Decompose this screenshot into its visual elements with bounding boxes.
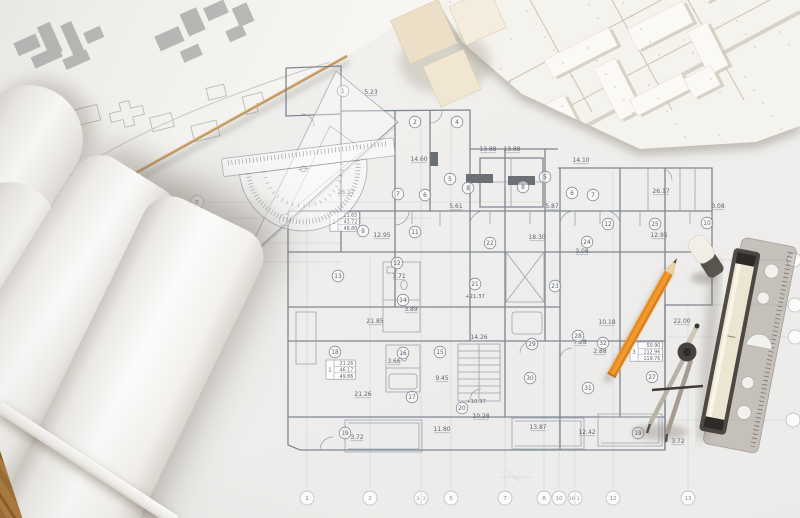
stipple-dot [474,126,476,128]
svg-text:3.08: 3.08 [575,248,589,255]
stipple-dot [779,31,781,33]
dimension-label: 21.26 [354,391,371,398]
compass-foot-right [666,434,667,442]
stipple-dot [500,68,502,70]
stipple-dot [614,86,616,88]
dimension-label: 2.88 [593,348,607,355]
room-number: 25 [649,218,661,230]
stipple-dot [571,75,573,77]
svg-text:14: 14 [399,298,407,304]
svg-text:22: 22 [486,241,494,247]
stipple-dot [745,33,747,35]
dimension-label: 13.88 [503,146,520,153]
svg-text:17: 17 [408,395,416,401]
stipple-dot [465,113,467,115]
svg-text:18: 18 [331,350,339,356]
svg-text:8: 8 [542,496,546,502]
svg-text:10: 10 [569,496,575,502]
compass-stem-tip [695,324,700,329]
svg-text:2.88: 2.88 [593,348,607,355]
stipple-dot [753,89,755,91]
axis-bubble: 101 [568,491,582,505]
stipple-dot [771,115,773,117]
stipple-dot [649,41,651,43]
dimension-label: 10.28 [472,413,489,420]
svg-text:10: 10 [703,221,711,227]
svg-text:3.89: 3.89 [404,306,418,313]
compass-crossbar [652,386,703,390]
compass-shadow [632,424,688,440]
room-number: 13 [332,270,344,282]
stipple-dot [623,99,625,101]
dimension-label: 9.45 [435,375,449,382]
area-table: 21.2646.1749.861 [326,360,355,380]
axis-bubble: 2 [363,491,377,505]
room-number: 10 [701,217,713,229]
svg-text:8: 8 [466,186,470,192]
svg-text:10.28: 10.28 [472,413,489,420]
axis-bubble: 13 [681,491,695,505]
stipple-dot [710,78,712,80]
svg-text:43.72: 43.72 [344,219,358,225]
svg-text:7: 7 [503,496,507,502]
stipple-dot [736,20,738,22]
svg-text:49.86: 49.86 [340,374,354,380]
room-number: 7 [587,189,599,201]
stipple-dot [684,136,686,138]
room-number: 8 [462,182,474,194]
svg-text:5.87: 5.87 [545,203,559,210]
stipple-dot [657,97,659,99]
axis-bubbles-bottom: 1232578101011213 [300,491,695,505]
stipple-dot [544,36,546,38]
dimension-label: 22.00 [673,318,690,325]
svg-text:3: 3 [416,496,419,502]
compass-leg-left [650,360,683,424]
stipple-dot [632,112,634,114]
level-mark: +10.37 [466,399,486,405]
stipple-dot [536,120,538,122]
stipple-dot [640,28,642,30]
axis-bubble: 5 [444,491,458,505]
svg-text:22.00: 22.00 [673,318,690,325]
axis-bubble: 32 [414,491,428,505]
dimension-label: 12.42 [578,429,595,436]
dimension-label: 21.85 [366,318,383,325]
room-number: 12 [391,257,403,269]
dimension-label: 10.18 [598,319,615,326]
svg-text:46.17: 46.17 [340,367,354,373]
stipple-dot [605,73,607,75]
stipple-dot [483,139,485,141]
axis-bubble: 7 [498,491,512,505]
svg-text:10.18: 10.18 [598,319,615,326]
svg-text:3: 3 [632,350,635,356]
axis-bubble: 1 [300,491,314,505]
room-number: 2 [409,116,421,128]
stipple-dot [718,134,720,136]
room-number: 22 [484,237,496,249]
stipple-dot [788,44,790,46]
svg-text:48.80: 48.80 [344,226,358,232]
svg-text:25: 25 [651,222,659,228]
stipple-dot [719,91,721,93]
svg-text:9.45: 9.45 [435,375,449,382]
dimension-label: 12.95 [373,232,390,239]
dimension-label: 3.72 [671,438,685,445]
svg-text:29: 29 [528,342,536,348]
room-number: 29 [526,338,538,350]
stipple-dot [744,76,746,78]
dimension-label: 5.61 [449,203,463,210]
room-number: 20 [456,402,468,414]
svg-text:31: 31 [584,386,592,392]
stipple-dot [693,9,695,11]
svg-text:5: 5 [543,175,547,181]
room-number: 6 [419,189,431,201]
room-number: 4 [451,116,463,128]
svg-text:6: 6 [423,193,427,199]
svg-text:13.87: 13.87 [529,424,546,431]
rolling-ruler [697,236,798,454]
dimension-label: 14.10 [572,157,589,164]
room-number: 9 [357,225,369,237]
stipple-dot [509,81,511,83]
dimension-label: 5.87 [545,203,559,210]
svg-text:1: 1 [577,496,580,502]
svg-text:14.26: 14.26 [470,334,487,341]
svg-text:5: 5 [448,177,452,183]
axis-bubble: 12 [606,491,620,505]
svg-text:11: 11 [411,230,419,236]
svg-text:12: 12 [609,496,616,502]
svg-text:7: 7 [396,192,400,198]
dimension-label: 11.80 [433,426,450,433]
svg-text:21.85: 21.85 [366,318,383,325]
svg-text:12: 12 [604,222,612,228]
stipple-dot [631,15,633,17]
stipple-dot [562,62,564,64]
level-mark: +21.37 [465,294,485,300]
room-number: 19 [339,427,351,439]
svg-text:3.72: 3.72 [671,438,685,445]
eraser [686,232,727,284]
dimension-label: 13.87 [529,424,546,431]
svg-text:2: 2 [368,496,372,502]
svg-text:30: 30 [526,376,534,382]
svg-text:13.88: 13.88 [503,146,520,153]
compass-stem [688,328,696,344]
stipple-dot [780,128,782,130]
svg-text:27: 27 [648,375,656,381]
svg-text:3.71: 3.71 [392,273,406,280]
stipple-dot [622,2,624,4]
svg-text:12.95: 12.95 [650,232,667,239]
stipple-dot [597,17,599,19]
protractor [221,138,403,240]
stipple-dot [762,102,764,104]
svg-text:3.08: 3.08 [711,203,725,210]
stipple-dot [754,46,756,48]
stipple-dot [701,65,703,67]
room-number: 18 [329,346,341,358]
stipple-dot [449,1,451,3]
room-number: 30 [524,372,536,384]
svg-text:13: 13 [684,496,692,502]
room-number: 6 [566,187,578,199]
area-table: 50.90112.96119.763 [630,342,662,362]
dimension-label: 3.08 [711,203,725,210]
axis-bubble [786,413,800,427]
svg-text:23: 23 [551,284,559,290]
axis-bubble: 8 [537,491,551,505]
room-number: 28 [572,330,584,342]
dimension-label: 14.60 [410,156,427,163]
stipple-dot [727,7,729,9]
dimension-label: 3.08 [575,248,589,255]
dimension-label: 13.88 [479,146,496,153]
svg-text:24: 24 [583,240,591,246]
stipple-dot [666,110,668,112]
stipple-dot [535,23,537,25]
svg-text:8: 8 [521,185,525,191]
stipple-dot [561,105,563,107]
dimension-label: 14.26 [470,334,487,341]
svg-text:28: 28 [574,334,582,340]
stipple-dot [648,84,650,86]
svg-text:2: 2 [413,120,417,126]
svg-text:5.61: 5.61 [449,203,463,210]
svg-text:18.30: 18.30 [528,234,545,241]
pencil [606,256,681,382]
dimension-label: 12.95 [650,232,667,239]
room-number: 16 [397,347,409,359]
svg-text:5: 5 [449,496,453,502]
room-number: 27 [646,371,658,383]
svg-text:1: 1 [305,496,309,502]
room-number: 23 [549,280,561,292]
dimension-label: 18.30 [528,234,545,241]
room-number: 31 [582,382,594,394]
svg-text:10: 10 [555,496,563,502]
svg-text:13: 13 [334,274,342,280]
svg-text:16: 16 [399,351,407,357]
svg-text:21.26: 21.26 [340,361,354,367]
svg-text:21: 21 [471,282,479,288]
svg-text:3.66: 3.66 [387,358,401,365]
svg-text:5.23: 5.23 [364,89,378,96]
room-number: 24 [581,236,593,248]
svg-text:6: 6 [570,191,574,197]
svg-text:12: 12 [393,261,401,267]
svg-text:26.17: 26.17 [652,188,669,195]
room-number: 11 [409,226,421,238]
stipple-dot [596,60,598,62]
svg-text:12.42: 12.42 [578,429,595,436]
room-number: 5 [539,171,551,183]
svg-text:21.26: 21.26 [354,391,371,398]
svg-text:14.10: 14.10 [572,157,589,164]
svg-text:12.95: 12.95 [373,232,390,239]
stipple-dot [658,54,660,56]
dimension-label: 3.71 [392,273,406,280]
stipple-dot [692,52,694,54]
svg-text:119.76: 119.76 [644,356,661,362]
stipple-dot [553,49,555,51]
svg-text:14.60: 14.60 [410,156,427,163]
svg-text:20: 20 [458,406,466,412]
stipple-dot [526,10,528,12]
svg-text:32: 32 [599,341,607,347]
svg-text:2: 2 [423,496,426,502]
room-number: 17 [406,391,418,403]
dimension-label: 3.89 [404,306,418,313]
axis-bubble: 10 [552,491,566,505]
svg-text:19: 19 [341,431,349,437]
dimension-label: 5.23 [364,89,378,96]
svg-text:1: 1 [328,368,331,374]
room-number: 7 [392,188,404,200]
room-number: 14 [397,294,409,306]
dimension-label: 3.72 [350,434,364,441]
photo-architectural-plans: 5.2314.6013.8813.8814.1026.1726.173.0812… [0,0,800,518]
room-number: 5 [444,173,456,185]
svg-text:3.72: 3.72 [350,434,364,441]
room-number: 32 [597,337,609,349]
svg-text:112.96: 112.96 [644,349,661,355]
stipple-dot [588,4,590,6]
svg-text:9: 9 [361,229,365,235]
stipple-dot [587,47,589,49]
svg-text:4: 4 [455,120,459,126]
stipple-dot [675,123,677,125]
stipple-dot [510,38,512,40]
axis-bubble [788,298,800,312]
dimension-label: 26.17 [652,188,669,195]
room-number: 12 [602,218,614,230]
room-number: 8 [517,181,529,193]
dimension-label: 3.66 [387,358,401,365]
svg-text:7: 7 [591,193,595,199]
svg-text:50.90: 50.90 [647,343,661,349]
compass-head-center [683,348,691,356]
svg-text:15: 15 [436,350,444,356]
room-number: 21 [469,278,481,290]
stipple-dot [527,107,529,109]
stipple-dot [579,131,581,133]
stipple-dot [683,39,685,41]
axis-bubble [788,330,800,344]
room-number: 15 [434,346,446,358]
level-marks: +21.37+10.37 [465,294,486,405]
svg-text:11.80: 11.80 [433,426,450,433]
svg-text:13.88: 13.88 [479,146,496,153]
